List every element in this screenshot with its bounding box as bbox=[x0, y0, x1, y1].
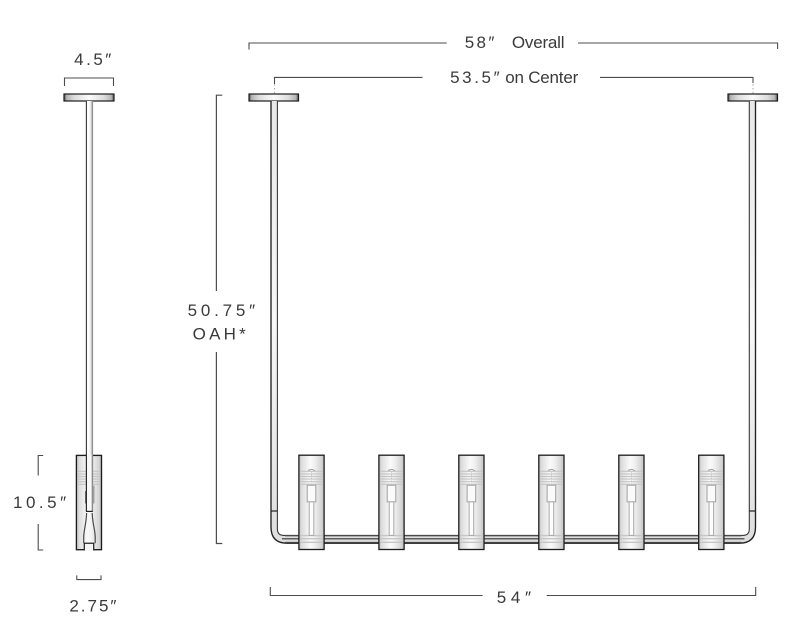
svg-text:58″: 58″ bbox=[465, 33, 497, 52]
svg-text:OAH*: OAH* bbox=[193, 325, 249, 344]
svg-text:on Center: on Center bbox=[505, 68, 578, 87]
svg-text:4.5″: 4.5″ bbox=[74, 50, 114, 69]
svg-text:53.5″: 53.5″ bbox=[450, 68, 502, 87]
svg-text:54″: 54″ bbox=[497, 588, 536, 607]
svg-text:10.5″: 10.5″ bbox=[13, 493, 70, 512]
svg-text:Overall: Overall bbox=[512, 33, 564, 52]
svg-text:50.75″: 50.75″ bbox=[188, 301, 259, 320]
svg-text:2.75″: 2.75″ bbox=[69, 597, 118, 616]
